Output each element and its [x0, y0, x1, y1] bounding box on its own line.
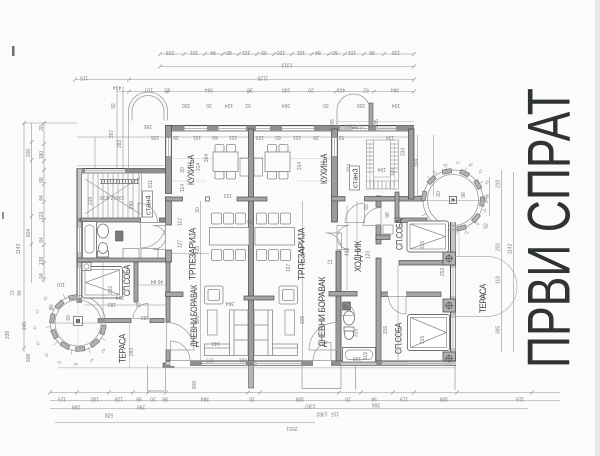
- svg-text:143: 143: [212, 340, 221, 346]
- svg-text:401: 401: [337, 87, 346, 93]
- svg-text:315: 315: [383, 326, 389, 335]
- svg-text:ТЕРАСА: ТЕРАСА: [478, 283, 489, 313]
- svg-text:КУХИЊА: КУХИЊА: [319, 153, 330, 184]
- svg-text:86: 86: [162, 396, 168, 402]
- svg-text:101: 101: [190, 49, 199, 55]
- svg-text:42: 42: [73, 362, 78, 367]
- svg-text:КУХИЊА: КУХИЊА: [186, 154, 197, 185]
- svg-text:501: 501: [336, 134, 345, 140]
- svg-text:ДНЕВНИ БОРАВАК: ДНЕВНИ БОРАВАК: [317, 276, 328, 347]
- svg-text:101: 101: [229, 134, 238, 140]
- svg-text:138: 138: [39, 257, 45, 266]
- svg-text:900: 900: [192, 381, 198, 390]
- svg-text:112: 112: [178, 218, 184, 226]
- svg-text:120: 120: [390, 168, 396, 177]
- svg-text:47: 47: [456, 160, 461, 165]
- svg-text:20: 20: [249, 396, 255, 402]
- svg-text:20: 20: [195, 207, 201, 213]
- svg-text:1313: 1313: [281, 62, 292, 68]
- svg-text:308: 308: [296, 396, 305, 402]
- svg-text:104: 104: [378, 166, 387, 172]
- svg-text:10x17.6/30: 10x17.6/30: [99, 194, 124, 200]
- svg-text:68: 68: [39, 177, 45, 183]
- svg-text:65: 65: [364, 204, 370, 210]
- svg-text:84: 84: [210, 49, 216, 55]
- svg-text:123: 123: [39, 212, 45, 221]
- svg-text:94: 94: [39, 273, 45, 279]
- svg-text:1142: 1142: [16, 243, 22, 254]
- svg-text:20: 20: [308, 87, 314, 93]
- svg-text:315: 315: [420, 241, 426, 250]
- svg-text:20: 20: [66, 315, 72, 321]
- svg-text:60: 60: [275, 134, 281, 140]
- svg-text:СП.СОБА: СП.СОБА: [122, 264, 133, 296]
- svg-text:1142: 1142: [508, 243, 514, 254]
- svg-text:253: 253: [440, 268, 446, 277]
- svg-text:185: 185: [351, 123, 360, 129]
- svg-text:20: 20: [323, 102, 329, 108]
- svg-text:42: 42: [32, 325, 37, 330]
- svg-text:110: 110: [57, 281, 65, 287]
- svg-text:60: 60: [212, 134, 218, 140]
- svg-text:52: 52: [484, 223, 490, 229]
- svg-text:49 84: 49 84: [151, 278, 164, 284]
- svg-text:84: 84: [315, 49, 321, 55]
- svg-text:180: 180: [39, 151, 45, 160]
- svg-text:ДНЕВНИ БОРАВАК: ДНЕВНИ БОРАВАК: [189, 284, 200, 347]
- svg-text:60: 60: [226, 49, 232, 55]
- svg-text:118: 118: [496, 276, 502, 284]
- svg-text:20: 20: [206, 102, 212, 108]
- svg-text:20: 20: [164, 87, 170, 93]
- svg-text:115: 115: [58, 396, 66, 402]
- svg-text:364: 364: [204, 154, 210, 163]
- svg-text:119: 119: [363, 352, 369, 360]
- svg-text:185: 185: [144, 123, 153, 129]
- svg-text:229: 229: [166, 49, 175, 55]
- svg-text:96: 96: [49, 304, 55, 310]
- svg-text:306: 306: [372, 402, 381, 408]
- svg-text:91: 91: [135, 301, 141, 307]
- svg-text:433: 433: [345, 248, 351, 257]
- svg-text:СП.СОБА: СП.СОБА: [395, 218, 406, 250]
- svg-text:12: 12: [327, 258, 333, 264]
- svg-text:20: 20: [436, 191, 442, 197]
- svg-text:290: 290: [137, 404, 146, 410]
- svg-text:ХОДНИК: ХОДНИК: [353, 240, 364, 272]
- svg-text:110: 110: [145, 87, 153, 93]
- svg-text:334: 334: [414, 159, 420, 168]
- svg-text:249: 249: [72, 404, 81, 410]
- svg-text:86: 86: [369, 49, 375, 55]
- svg-text:115: 115: [516, 396, 524, 402]
- svg-text:101: 101: [348, 49, 357, 55]
- svg-text:92: 92: [111, 103, 117, 109]
- svg-text:305: 305: [300, 316, 306, 325]
- svg-text:183: 183: [141, 314, 150, 320]
- svg-text:334: 334: [401, 148, 407, 157]
- svg-text:134: 134: [386, 134, 395, 140]
- svg-text:365: 365: [496, 326, 502, 335]
- svg-text:98: 98: [385, 212, 391, 218]
- svg-text:101: 101: [293, 134, 302, 140]
- svg-text:364: 364: [226, 300, 235, 306]
- svg-text:стан3: стан3: [351, 168, 360, 188]
- svg-text:52: 52: [245, 102, 251, 108]
- svg-text:84: 84: [39, 195, 45, 201]
- svg-text:123: 123: [366, 251, 372, 260]
- svg-text:99: 99: [261, 49, 267, 55]
- svg-text:ТРПЕЗАРИЈА: ТРПЕЗАРИЈА: [188, 227, 199, 280]
- svg-text:130: 130: [91, 396, 100, 402]
- svg-text:123: 123: [224, 192, 233, 198]
- svg-text:200: 200: [26, 149, 32, 158]
- svg-text:20: 20: [247, 218, 253, 224]
- svg-text:20: 20: [345, 396, 351, 402]
- svg-text:127: 127: [178, 240, 184, 249]
- svg-text:101: 101: [193, 134, 202, 140]
- svg-text:СП.СОБА: СП.СОБА: [394, 322, 405, 354]
- svg-text:120: 120: [277, 49, 286, 55]
- svg-text:101: 101: [297, 49, 306, 55]
- svg-text:104: 104: [225, 102, 234, 108]
- svg-text:20: 20: [39, 125, 45, 131]
- svg-text:315: 315: [354, 329, 360, 338]
- svg-text:29: 29: [247, 87, 253, 93]
- svg-text:811: 811: [148, 180, 154, 188]
- svg-text:119: 119: [400, 396, 408, 402]
- svg-text:115: 115: [331, 411, 339, 417]
- svg-text:219: 219: [496, 180, 502, 189]
- svg-text:94: 94: [371, 396, 377, 402]
- svg-text:ПРВИ СПРАТ: ПРВИ СПРАТ: [516, 88, 583, 368]
- svg-text:308: 308: [440, 396, 449, 402]
- svg-text:245: 245: [22, 322, 28, 331]
- svg-text:85: 85: [374, 119, 380, 125]
- svg-text:стан4: стан4: [144, 195, 153, 215]
- svg-text:115: 115: [80, 75, 88, 81]
- svg-text:183: 183: [108, 301, 117, 307]
- svg-text:364: 364: [391, 87, 400, 93]
- svg-text:283: 283: [129, 348, 135, 357]
- svg-text:575: 575: [206, 357, 215, 363]
- svg-text:338: 338: [5, 331, 11, 340]
- svg-text:167: 167: [286, 264, 292, 273]
- svg-text:120: 120: [392, 49, 401, 55]
- svg-text:508: 508: [26, 354, 32, 363]
- svg-text:60: 60: [332, 49, 338, 55]
- svg-text:72: 72: [10, 290, 16, 296]
- svg-text:29: 29: [313, 134, 319, 140]
- svg-text:314: 314: [297, 162, 303, 171]
- svg-text:1387: 1387: [304, 403, 315, 409]
- svg-text:1382: 1382: [316, 411, 327, 417]
- svg-text:85: 85: [330, 119, 336, 125]
- svg-text:29: 29: [173, 134, 179, 140]
- svg-text:219: 219: [88, 197, 94, 206]
- svg-text:561: 561: [239, 357, 248, 363]
- svg-text:364: 364: [282, 102, 291, 108]
- svg-text:ТРПЕЗАРИЈА: ТРПЕЗАРИЈА: [297, 227, 308, 280]
- svg-text:282: 282: [108, 286, 114, 295]
- svg-text:128: 128: [115, 396, 124, 402]
- svg-text:104: 104: [392, 102, 401, 108]
- svg-text:201: 201: [496, 243, 502, 252]
- svg-text:47: 47: [485, 193, 490, 198]
- svg-text:384: 384: [201, 396, 210, 402]
- svg-text:357: 357: [109, 130, 115, 139]
- svg-text:330: 330: [357, 102, 366, 108]
- svg-text:2551: 2551: [286, 425, 297, 431]
- svg-text:52: 52: [363, 87, 369, 93]
- svg-text:330: 330: [282, 87, 291, 93]
- svg-text:84: 84: [39, 237, 45, 243]
- svg-text:94: 94: [17, 290, 23, 296]
- svg-text:1125: 1125: [257, 75, 268, 81]
- svg-text:190: 190: [353, 355, 362, 361]
- svg-text:364: 364: [205, 87, 214, 93]
- svg-text:105: 105: [151, 134, 160, 140]
- svg-text:315: 315: [420, 336, 426, 345]
- svg-text:96: 96: [136, 396, 142, 402]
- svg-text:528: 528: [105, 412, 114, 418]
- svg-text:604: 604: [26, 229, 32, 238]
- svg-text:98: 98: [461, 192, 467, 198]
- svg-text:101: 101: [242, 49, 251, 55]
- svg-text:103: 103: [256, 134, 265, 140]
- svg-text:20: 20: [150, 396, 156, 402]
- svg-text:283: 283: [117, 140, 123, 149]
- svg-text:280: 280: [129, 201, 135, 210]
- svg-text:ТЕРАСА: ТЕРАСА: [118, 333, 129, 363]
- svg-text:330: 330: [182, 102, 191, 108]
